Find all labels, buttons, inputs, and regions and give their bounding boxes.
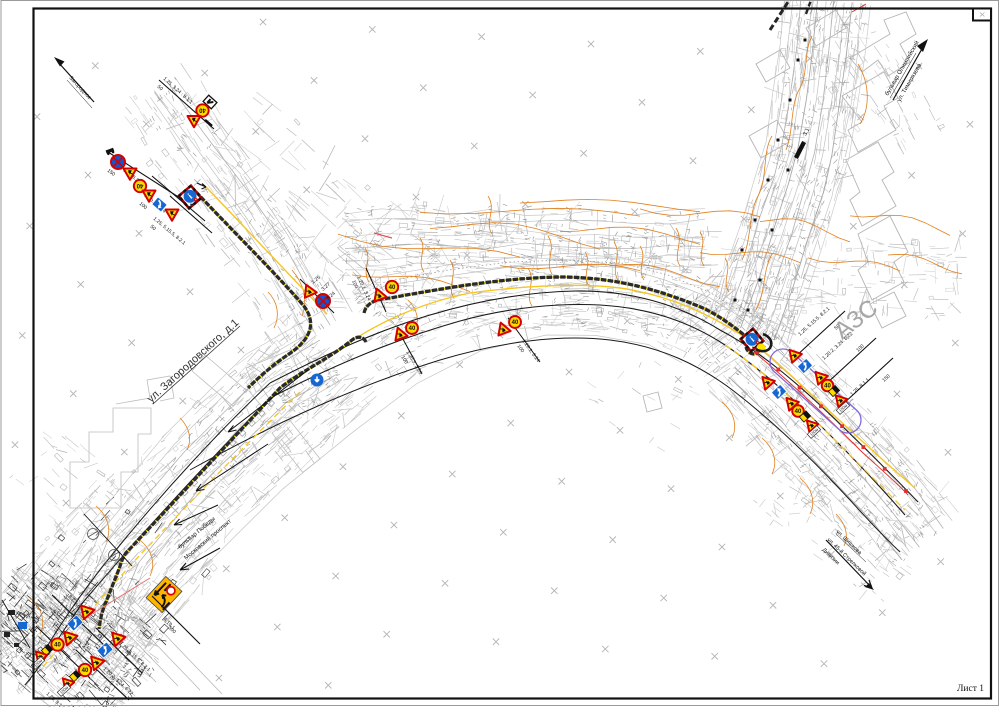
svg-text:40: 40 (409, 326, 416, 332)
svg-text:40: 40 (136, 182, 143, 188)
svg-text:40: 40 (389, 285, 396, 291)
svg-text:40: 40 (824, 384, 831, 390)
svg-text:Лист 1: Лист 1 (957, 684, 984, 694)
svg-text:40: 40 (199, 106, 206, 112)
svg-text:40: 40 (82, 668, 89, 674)
svg-text:40: 40 (54, 643, 61, 649)
svg-text:40: 40 (795, 409, 802, 415)
svg-text:40: 40 (512, 320, 519, 326)
